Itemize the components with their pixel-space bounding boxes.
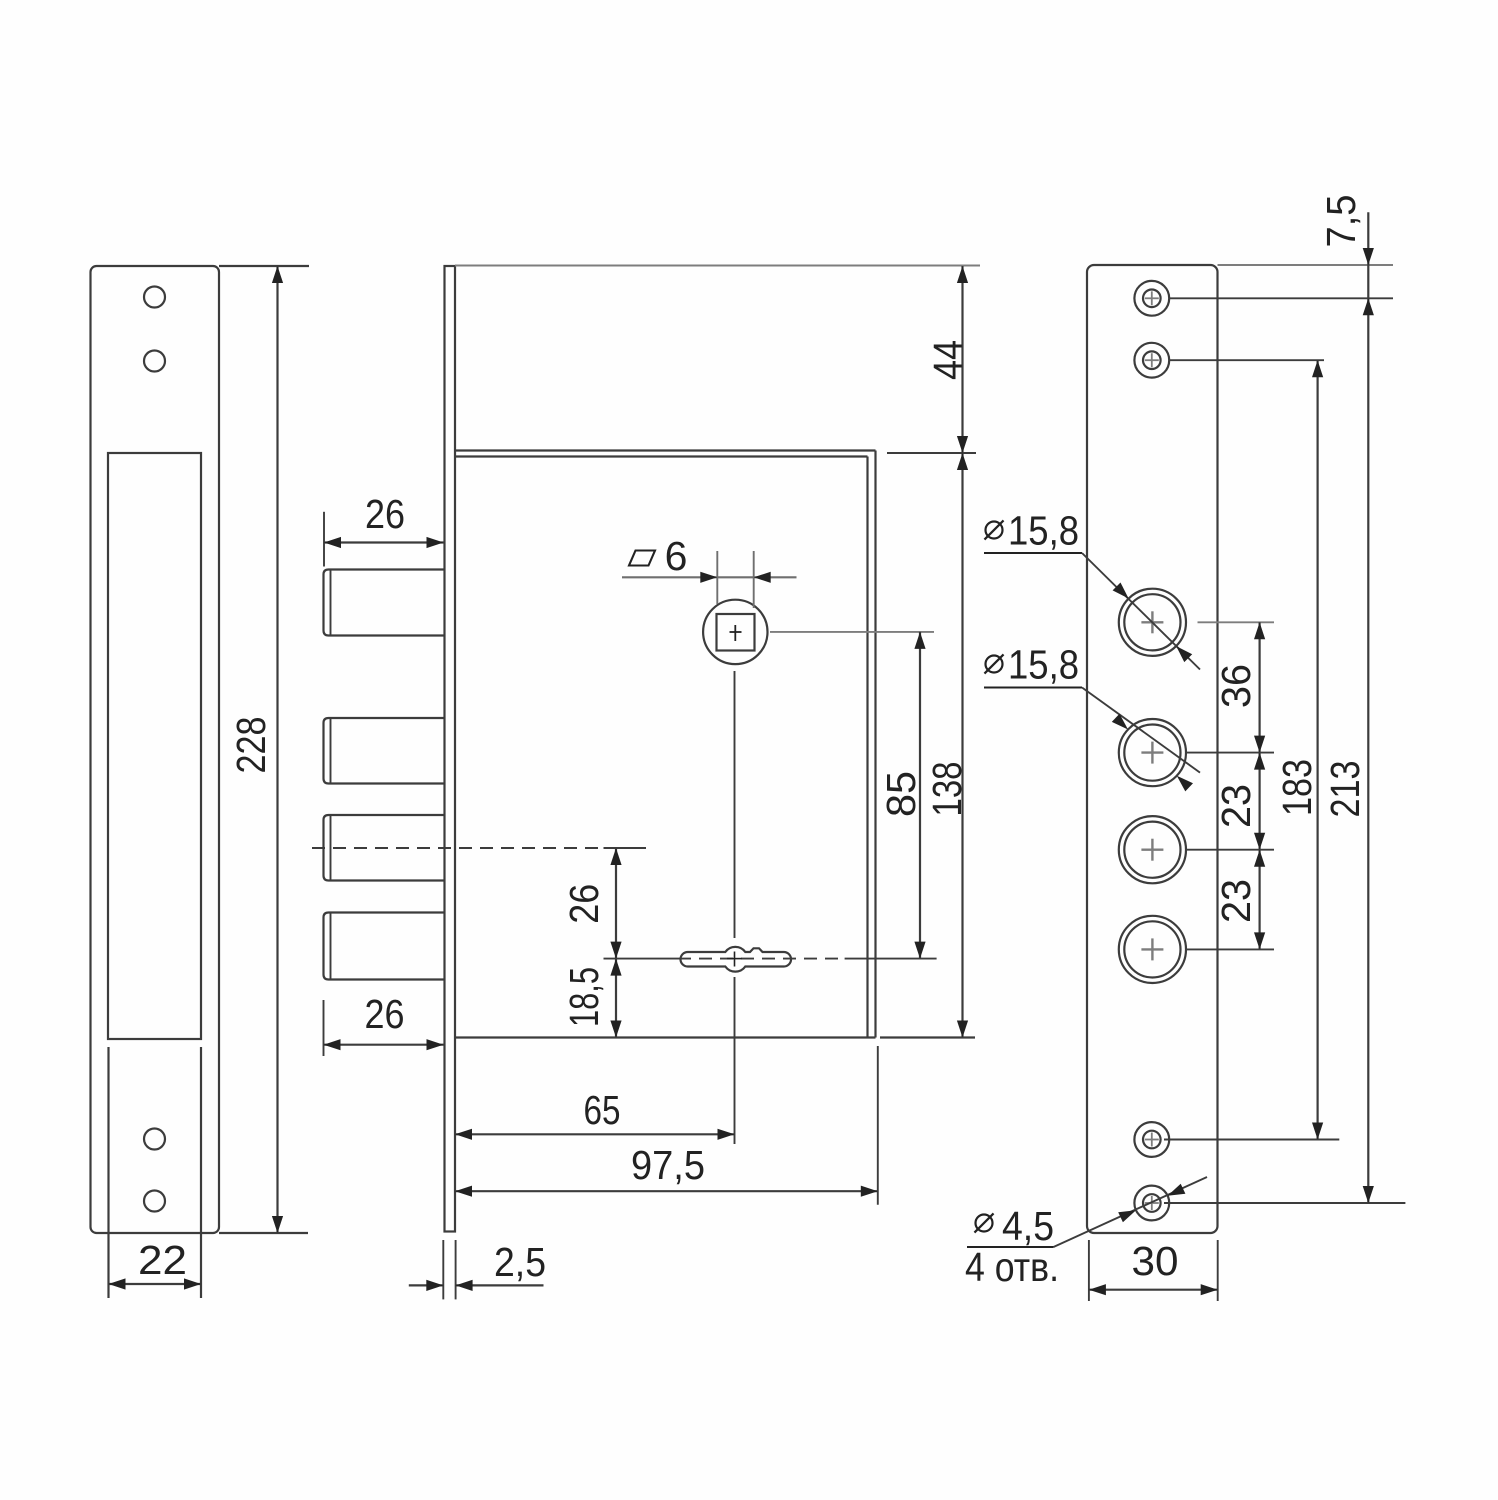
svg-text:44: 44 (925, 340, 971, 380)
svg-text:138: 138 (924, 762, 970, 817)
svg-text:2,5: 2,5 (494, 1239, 546, 1285)
svg-text:4 отв.: 4 отв. (965, 1244, 1059, 1290)
svg-text:4,5: 4,5 (1002, 1203, 1054, 1249)
svg-text:7,5: 7,5 (1318, 195, 1364, 248)
svg-text:26: 26 (365, 491, 405, 537)
svg-text:213: 213 (1322, 761, 1368, 818)
svg-text:15,8: 15,8 (1008, 642, 1079, 688)
svg-text:85: 85 (878, 771, 924, 817)
svg-text:18,5: 18,5 (561, 967, 607, 1027)
svg-text:15,8: 15,8 (1008, 508, 1079, 554)
svg-text:23: 23 (1213, 879, 1259, 923)
svg-text:26: 26 (561, 884, 607, 924)
svg-text:26: 26 (365, 991, 405, 1037)
svg-text:65: 65 (584, 1087, 621, 1133)
svg-text:228: 228 (228, 717, 274, 774)
svg-text:23: 23 (1213, 784, 1259, 828)
svg-text:30: 30 (1132, 1238, 1179, 1284)
svg-text:6: 6 (665, 533, 688, 579)
svg-text:36: 36 (1213, 664, 1259, 708)
svg-text:183: 183 (1274, 759, 1320, 816)
svg-text:22: 22 (138, 1237, 187, 1283)
svg-text:97,5: 97,5 (631, 1142, 705, 1188)
